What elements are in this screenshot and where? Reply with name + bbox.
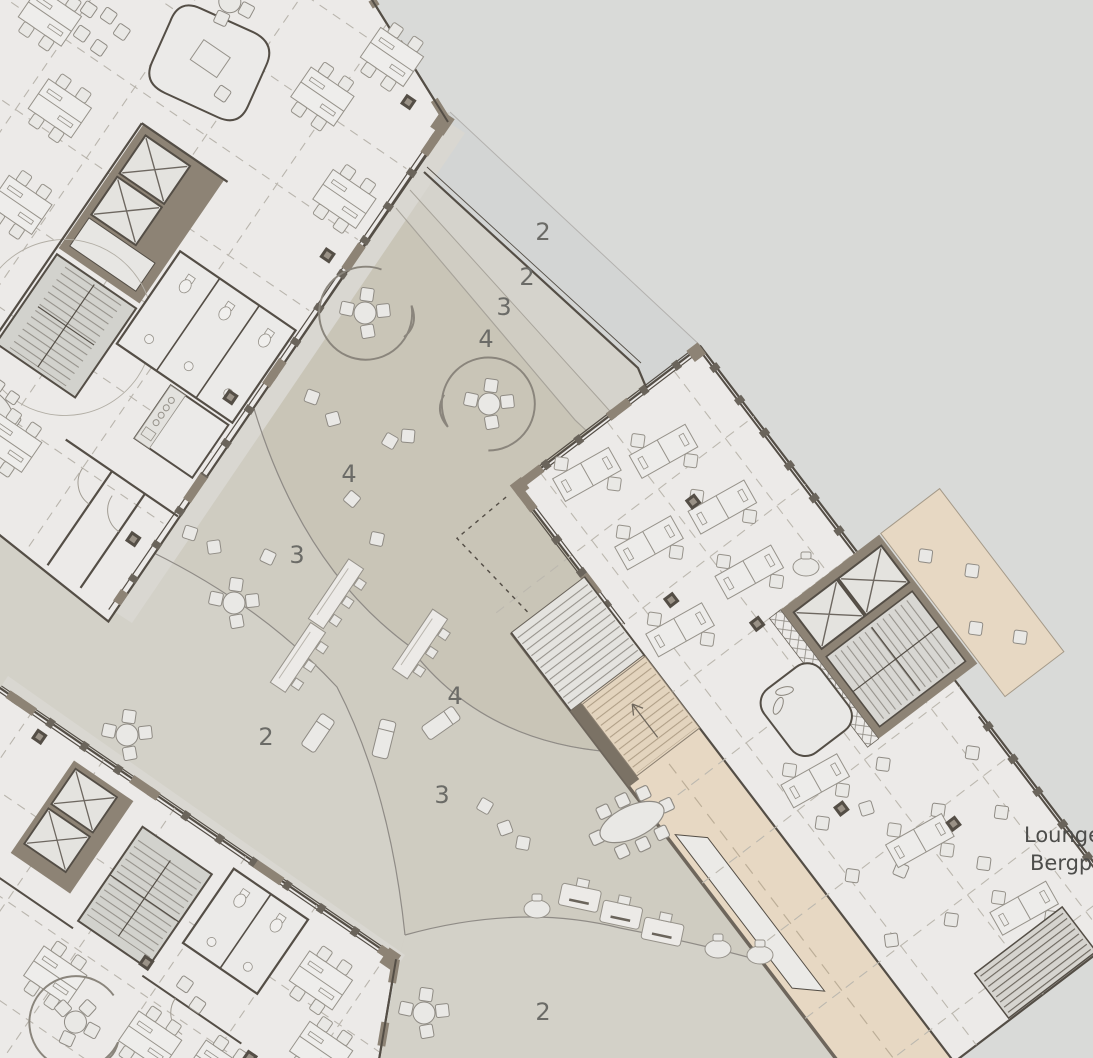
zone-label: 2 xyxy=(258,723,273,751)
zone-label: 4 xyxy=(478,325,493,353)
lounge-label-line1: Lounge xyxy=(1024,823,1093,847)
zone-label: 3 xyxy=(289,541,304,569)
terrace-chair xyxy=(1013,630,1028,645)
chair xyxy=(515,835,530,850)
terrace-chair xyxy=(918,549,933,564)
zone-label: 3 xyxy=(434,781,449,809)
zone-label: 2 xyxy=(535,218,550,246)
lounge-label-line2: Bergpf xyxy=(1030,851,1093,875)
chair xyxy=(207,540,222,555)
chair xyxy=(325,411,341,427)
chair xyxy=(401,429,415,443)
chair xyxy=(369,531,384,546)
zone-label: 2 xyxy=(535,998,550,1026)
zone-label: 4 xyxy=(447,682,462,710)
floor-plan-canvas: 2 2 3 4 4 3 4 2 3 2 Lounge Bergpf xyxy=(0,0,1093,1058)
terrace-chair xyxy=(968,621,983,636)
zone-label: 3 xyxy=(496,293,511,321)
floor-plan-drawing: 2 2 3 4 4 3 4 2 3 2 Lounge Bergpf xyxy=(0,0,1093,1058)
zone-label: 2 xyxy=(519,263,534,291)
terrace-chair xyxy=(965,563,980,578)
zone-label: 4 xyxy=(341,460,356,488)
